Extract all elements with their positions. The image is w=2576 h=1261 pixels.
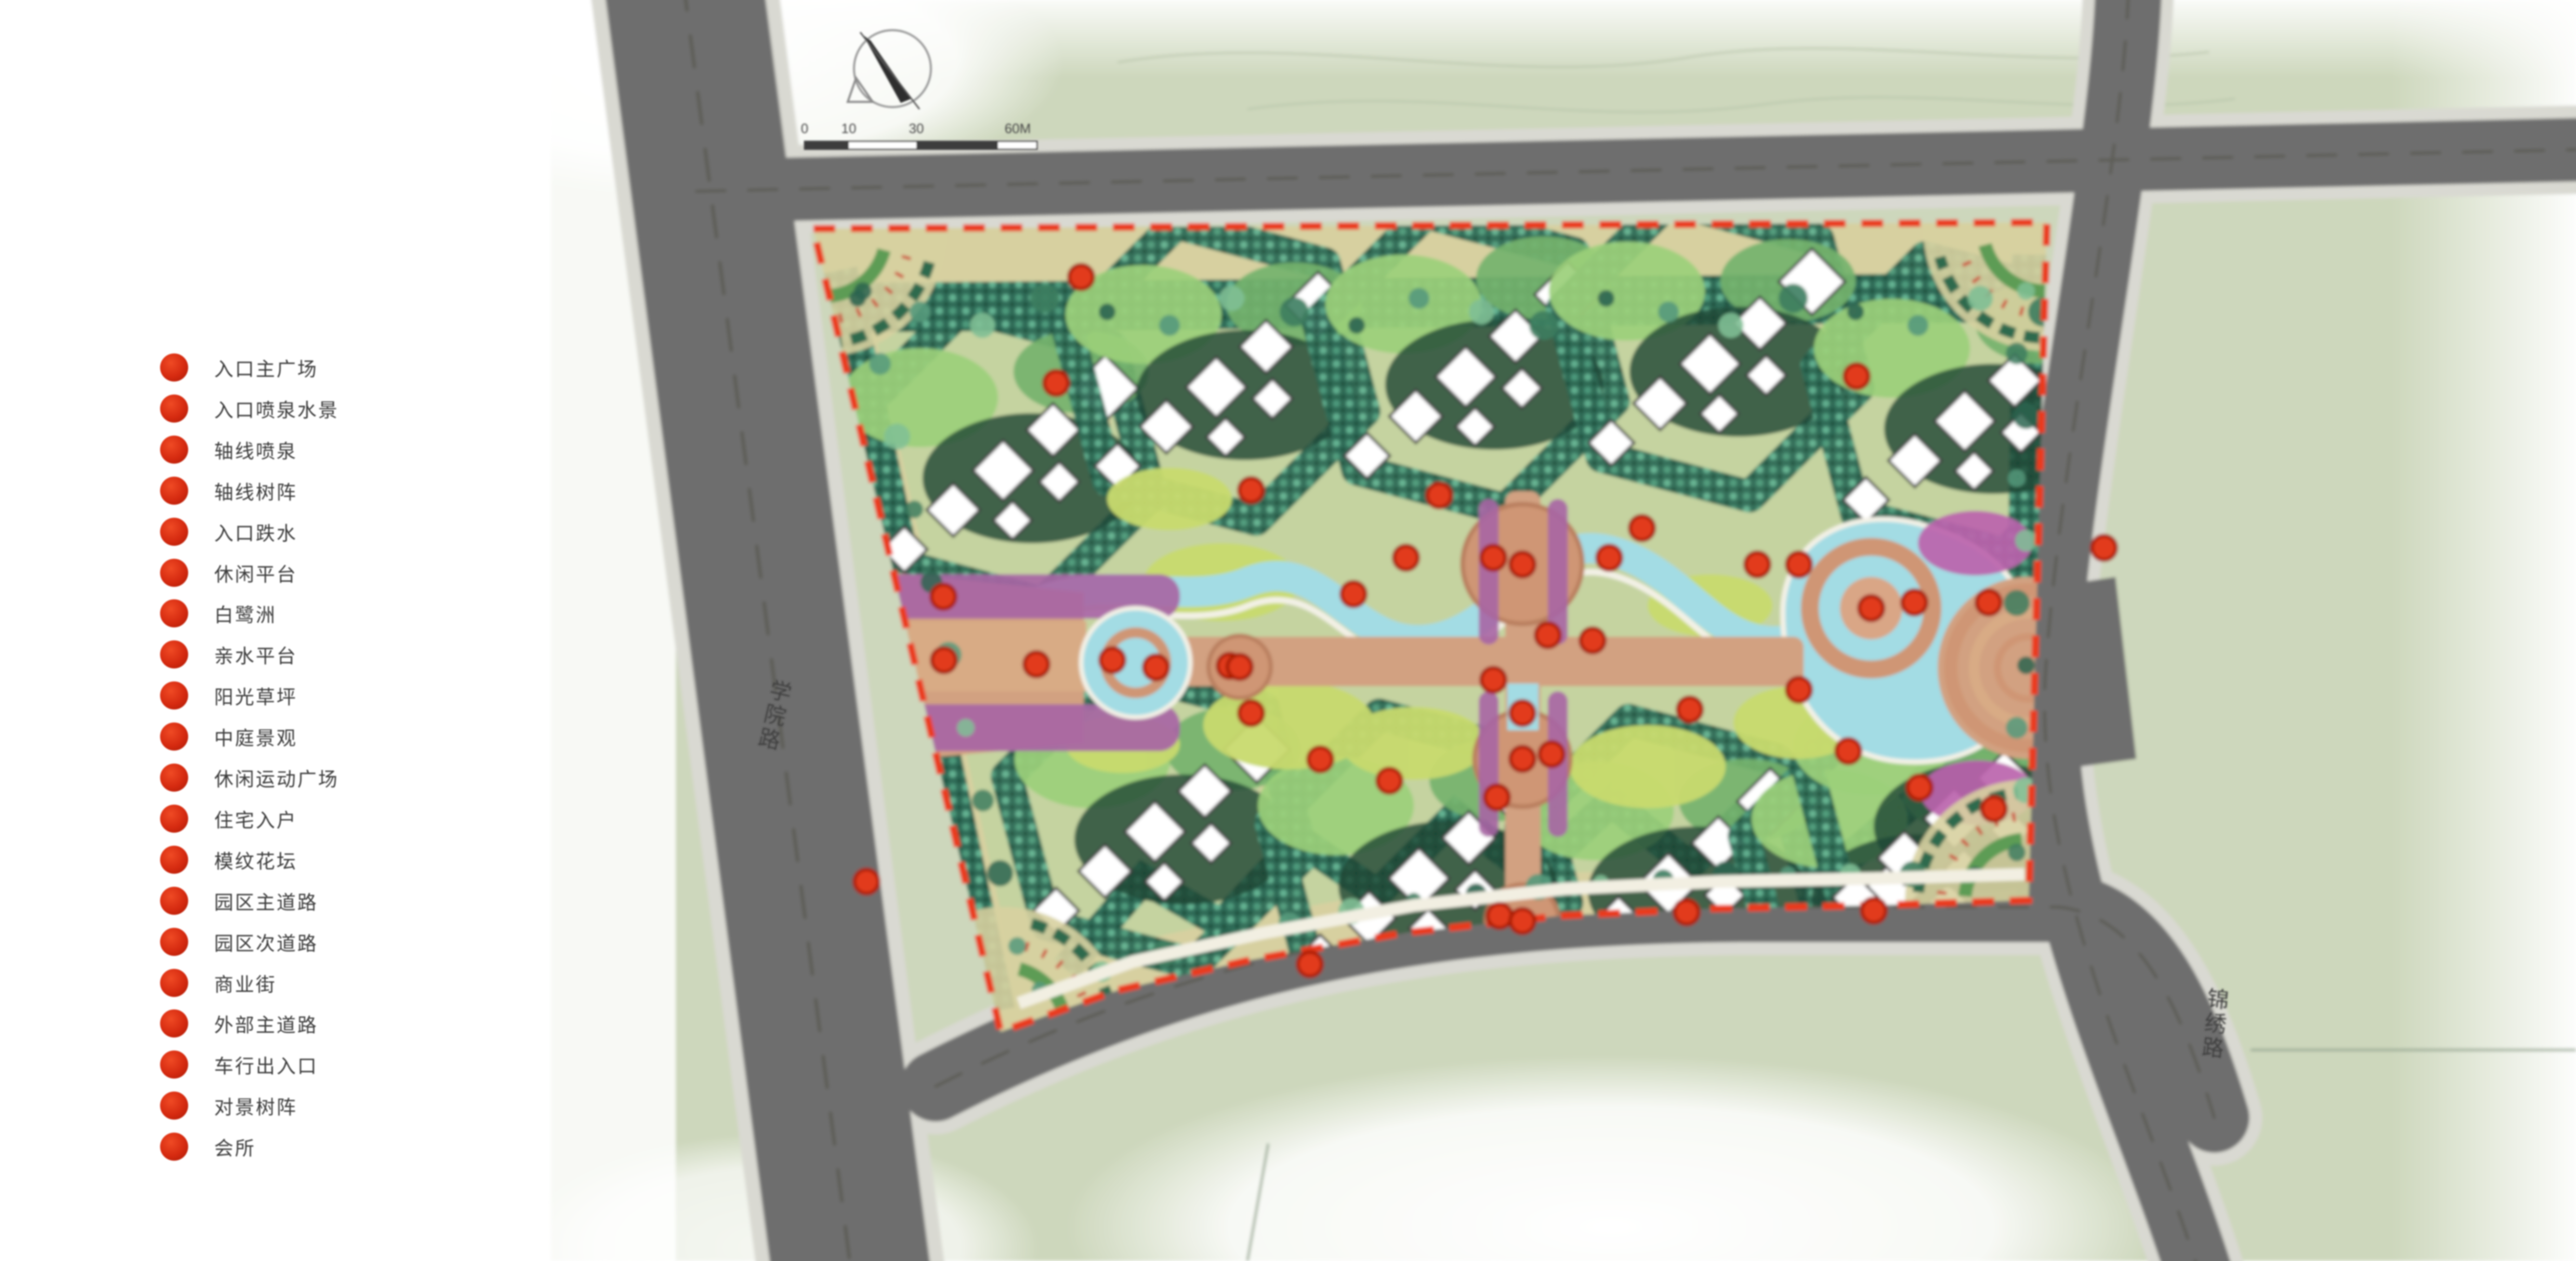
poi-marker <box>1142 653 1170 681</box>
poi-marker <box>930 646 958 674</box>
poi-marker <box>1508 550 1536 579</box>
poi-marker <box>1975 588 2003 616</box>
poi-marker <box>1226 653 1254 681</box>
poi-marker <box>1673 898 1701 926</box>
poi-marker <box>1237 476 1265 504</box>
poi-marker <box>1237 699 1265 727</box>
poi-marker <box>1479 666 1507 694</box>
poi-marker <box>1860 897 1888 925</box>
poi-marker <box>1900 588 1928 616</box>
poi-marker <box>1785 676 1813 704</box>
poi-marker <box>1508 745 1536 773</box>
site-plan-svg: 0 10 30 60M 学院路 锦绣路 <box>0 0 2576 1261</box>
poi-marker <box>1595 544 1623 572</box>
poi-marker <box>1392 544 1420 572</box>
poi-marker <box>1508 907 1536 935</box>
poi-marker <box>1628 514 1656 542</box>
poi-marker <box>1579 626 1607 654</box>
poi-marker <box>1306 745 1334 773</box>
poi-marker <box>1857 594 1885 622</box>
poi-marker <box>1067 263 1095 291</box>
poi-marker <box>1042 369 1070 397</box>
poi-marker <box>1743 550 1771 579</box>
poi-marker <box>1980 795 2008 823</box>
scale-label-10: 10 <box>842 121 857 136</box>
poi-marker <box>1339 580 1368 608</box>
poi-marker <box>929 583 957 611</box>
poi-marker <box>852 868 880 896</box>
poi-marker <box>1534 621 1562 649</box>
scale-label-60: 60M <box>1005 121 1031 136</box>
scale-label-30: 30 <box>909 121 924 136</box>
poi-marker <box>1508 699 1536 727</box>
poi-marker <box>1537 740 1566 768</box>
poi-marker <box>1098 646 1126 674</box>
poi-marker <box>1479 544 1507 572</box>
scale-label-0: 0 <box>801 121 808 136</box>
poi-marker <box>1785 550 1813 579</box>
poi-marker <box>1375 767 1403 795</box>
poi-marker <box>1296 950 1324 978</box>
poi-marker <box>1834 737 1862 765</box>
poi-marker <box>1676 695 1704 724</box>
poi-marker <box>1483 783 1511 811</box>
poi-marker <box>1843 362 1871 390</box>
poi-marker <box>1425 481 1453 509</box>
poi-marker <box>2090 534 2118 562</box>
poi-marker <box>1905 773 1934 802</box>
poi-marker <box>1022 650 1050 678</box>
